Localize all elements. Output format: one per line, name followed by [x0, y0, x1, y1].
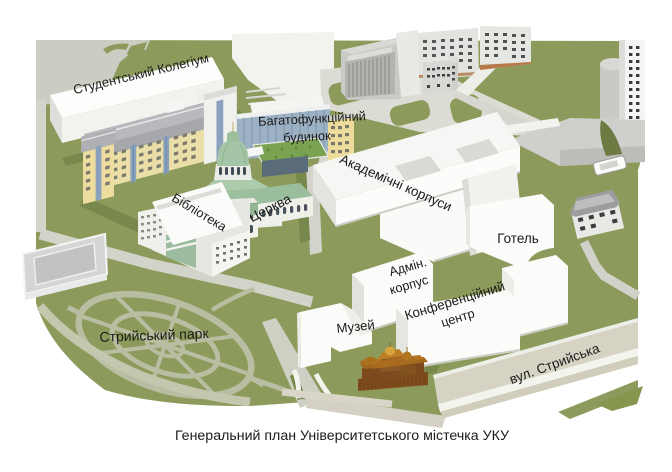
- svg-text:Готель: Готель: [497, 231, 539, 246]
- svg-text:будинок: будинок: [283, 128, 332, 145]
- svg-text:Генеральний план Університетсь: Генеральний план Університетського місте…: [175, 428, 510, 444]
